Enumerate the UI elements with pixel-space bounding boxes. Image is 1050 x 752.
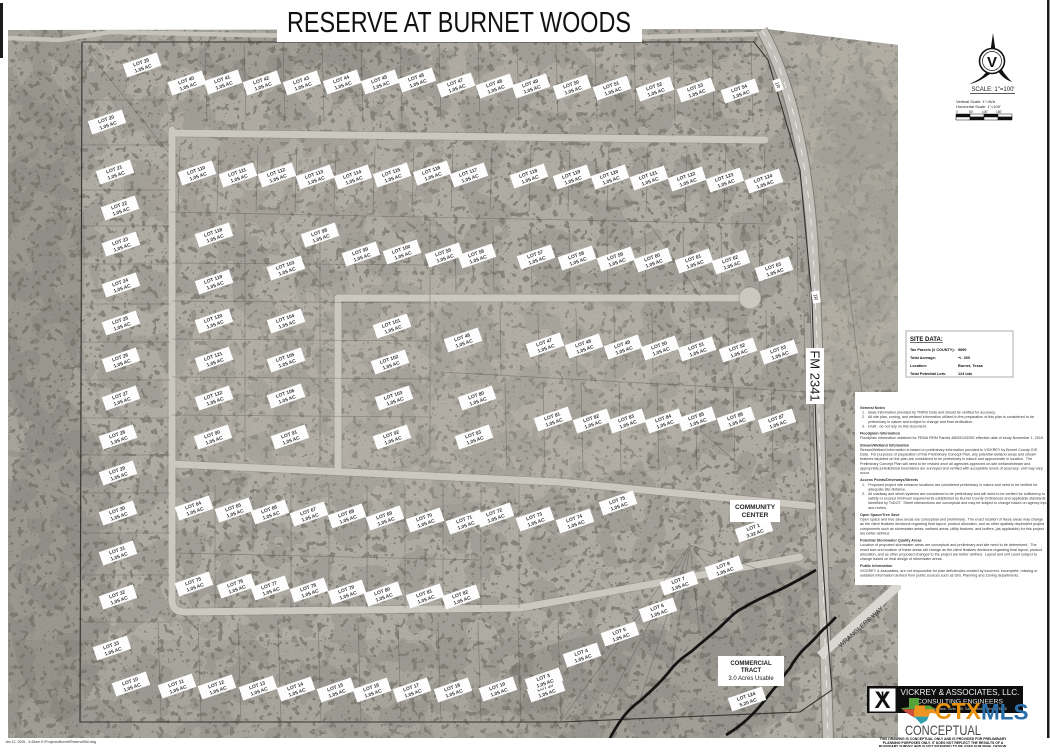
svg-text:allocation, and as other propo: allocation, and as other proposed change… [860, 552, 1037, 556]
svg-text:CONCEPTUAL: CONCEPTUAL [905, 722, 981, 738]
svg-text:adequate site distance.: adequate site distance. [860, 487, 906, 491]
svg-text:124 lots: 124 lots [958, 372, 972, 376]
svg-text:Data. For purposes of prepara: Data. For purposes of preparation of thi… [860, 453, 1036, 457]
svg-text:Total Potential Lots:: Total Potential Lots: [910, 372, 946, 376]
svg-text:exact size and location of the: exact size and location of these areas w… [860, 548, 1042, 552]
svg-text:Potential Stormwater Quality A: Potential Stormwater Quality Areas [860, 539, 922, 543]
svg-text:COMMERCIAL: COMMERCIAL [730, 661, 772, 667]
svg-text:change based on final design o: change based on final design of stormwat… [860, 557, 943, 561]
svg-text:VICKREY & ASSOCIATES, LLC.: VICKREY & ASSOCIATES, LLC. [901, 688, 1020, 697]
svg-text:Location:: Location: [910, 364, 927, 368]
svg-text:are better defined.: are better defined. [860, 531, 890, 535]
svg-text:Floodplain Information: Floodplain Information [860, 432, 901, 436]
svg-text:I: I [881, 689, 884, 703]
svg-text:3.0 Acres Usable: 3.0 Acres Usable [728, 676, 774, 682]
svg-text:FM 2341: FM 2341 [808, 350, 823, 401]
svg-text:0: 0 [956, 110, 958, 114]
svg-text:Burnet, Texas: Burnet, Texas [958, 364, 983, 368]
svg-text:RESERVE AT BURNET WOODS: RESERVE AT BURNET WOODS [287, 7, 631, 39]
svg-text:100': 100' [982, 110, 988, 114]
svg-text:CTX: CTX [935, 698, 982, 724]
svg-text:+/- 300: +/- 300 [958, 356, 970, 360]
svg-text:features depicted on the plan: features depicted on the plan are consid… [860, 457, 1032, 461]
svg-text:VICKREY & Associates, are not: VICKREY & Associates, are not responsibl… [860, 569, 1038, 573]
svg-text:CENTER: CENTER [742, 512, 769, 519]
svg-text:1. Base information provided: 1. Base information provided by TNRIS Da… [860, 411, 996, 415]
svg-text:TRACT: TRACT [741, 668, 762, 674]
svg-text:SITE DATA:: SITE DATA: [910, 337, 943, 343]
svg-text:50': 50' [969, 110, 974, 114]
svg-text:Location of proposed stormwate: Location of proposed stormwater areas ar… [860, 543, 1037, 547]
svg-text:General Notes: General Notes [860, 406, 885, 410]
svg-text:appropriate jurisdictional bou: appropriate jurisdictional boundaries ar… [860, 466, 1043, 470]
svg-text:MLS: MLS [981, 700, 1029, 725]
svg-text:preliminary in nature and subj: preliminary in nature and subject to cha… [860, 420, 973, 424]
svg-text:150': 150' [996, 110, 1002, 114]
svg-text:components such as stormwater: components such as stormwater areas, wet… [860, 527, 1044, 531]
svg-text:Access Points/Driveways/Street: Access Points/Driveways/Streets [860, 478, 918, 482]
svg-text:outdated information derived f: outdated information derived from public… [860, 573, 1019, 577]
svg-text:2. All roadway and street sy: 2. All roadway and street systems are co… [860, 492, 1045, 496]
svg-text:COMMUNITY: COMMUNITY [735, 504, 776, 511]
svg-text:2. All site plan, zoning, an: 2. All site plan, zoning, and wetland in… [860, 415, 1034, 419]
svg-text:as the client finalizes decisi: as the client finalizes decisions regard… [860, 522, 1044, 526]
svg-text:Stream/Wetland information is: Stream/Wetland information is based on p… [860, 448, 1038, 452]
svg-text:Jan 12, 2005 - 9:45am K:\Pro: Jan 12, 2005 - 9:45am K:\Projects\Burnet… [5, 740, 96, 744]
svg-text:satisfy or exceed minimum requ: satisfy or exceed minimum requirements e… [860, 497, 1046, 501]
svg-text:Horizontal Scale: 1"=100': Horizontal Scale: 1"=100' [956, 104, 1001, 109]
svg-text:Preliminary Concept Plan will: Preliminary Concept Plan will need to be… [860, 462, 1030, 466]
svg-text:SCALE: 1"=100': SCALE: 1"=100' [971, 87, 1014, 93]
svg-text:Open space and tree save areas: Open space and tree save areas are conce… [860, 518, 1043, 522]
svg-text:and review.: and review. [860, 506, 887, 510]
svg-text:Public Information: Public Information [860, 564, 893, 568]
svg-text:9890: 9890 [958, 348, 966, 352]
svg-text:Open Space/Tree Save: Open Space/Tree Save [860, 513, 900, 517]
svg-text:identified by TxDOT. Street i: identified by TxDOT. Street intersection… [860, 501, 1049, 505]
svg-text:V: V [987, 54, 997, 71]
svg-text:1. Proposed project site ent: 1. Proposed project site entrance locati… [860, 483, 1038, 487]
svg-text:Stream/Wetland Information: Stream/Wetland Information [860, 443, 910, 447]
svg-text:Floodplain information obtaine: Floodplain information obtained for FEMA… [860, 436, 1044, 440]
svg-text:Total Acreage:: Total Acreage: [910, 356, 936, 360]
svg-text:occur.: occur. [860, 471, 870, 475]
svg-text:3. Draft - do not rely on th: 3. Draft - do not rely on this document. [860, 424, 927, 428]
svg-text:Tax Parcels (# COUNTY):: Tax Parcels (# COUNTY): [910, 348, 955, 352]
